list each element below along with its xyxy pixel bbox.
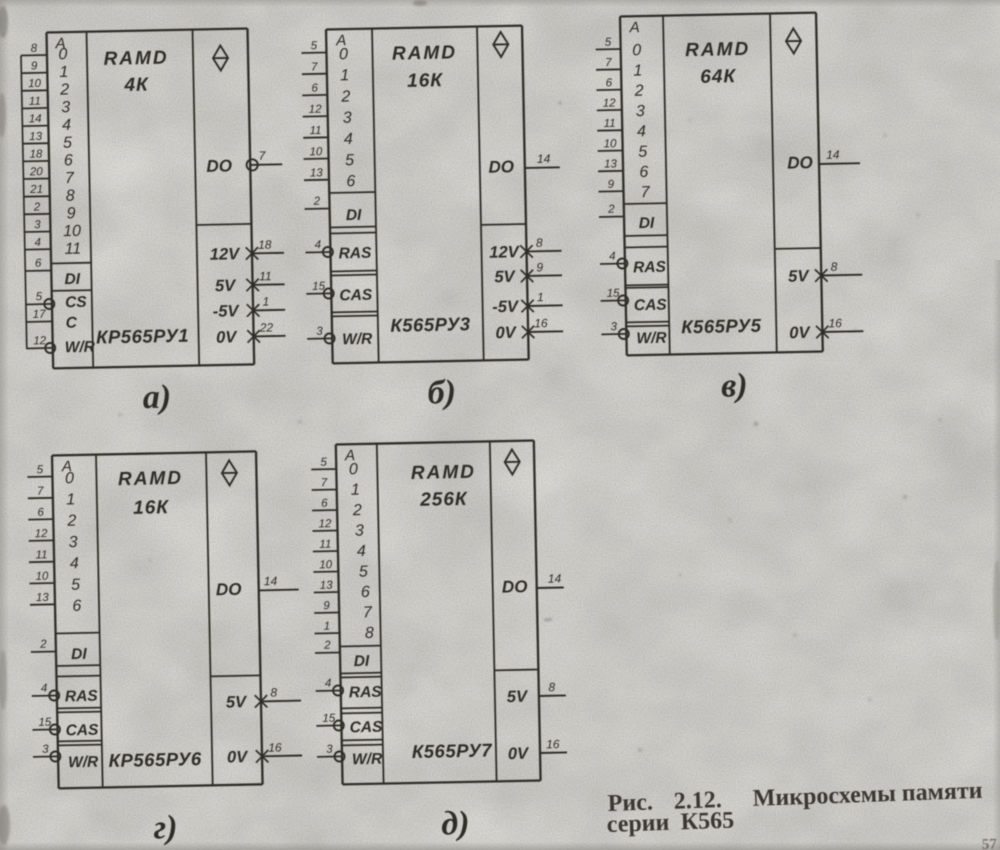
svg-text:9: 9 [323, 600, 330, 612]
svg-text:DI: DI [354, 653, 371, 670]
svg-text:256К: 256К [419, 489, 468, 511]
svg-text:DI: DI [71, 646, 88, 663]
svg-text:К565РУ5: К565РУ5 [681, 315, 762, 338]
svg-text:12V: 12V [210, 245, 242, 264]
svg-text:11: 11 [64, 241, 81, 258]
svg-text:6: 6 [639, 164, 648, 181]
svg-text:4: 4 [315, 239, 322, 251]
svg-text:8: 8 [31, 43, 38, 55]
svg-text:2: 2 [607, 204, 615, 216]
svg-text:серии: серии [606, 810, 670, 838]
svg-text:18: 18 [258, 238, 272, 252]
svg-text:4: 4 [34, 237, 41, 249]
svg-text:18: 18 [29, 148, 43, 160]
svg-text:а): а) [142, 379, 171, 417]
svg-text:11: 11 [604, 118, 616, 130]
svg-text:CAS: CAS [634, 297, 668, 315]
svg-text:8: 8 [270, 686, 277, 700]
svg-text:4: 4 [70, 555, 79, 572]
svg-text:3: 3 [61, 99, 70, 116]
svg-text:12V: 12V [489, 243, 521, 262]
svg-text:16К: 16К [133, 497, 170, 519]
svg-text:3: 3 [343, 110, 352, 127]
svg-text:1: 1 [537, 290, 544, 304]
svg-text:11: 11 [319, 539, 331, 551]
svg-text:16: 16 [534, 316, 548, 330]
svg-text:5: 5 [359, 563, 368, 580]
svg-text:3: 3 [316, 326, 323, 338]
svg-text:16К: 16К [407, 70, 444, 92]
svg-text:RAS: RAS [349, 684, 383, 702]
svg-text:1: 1 [324, 621, 331, 633]
svg-text:W/R: W/R [342, 331, 373, 349]
svg-text:4: 4 [637, 123, 646, 140]
svg-text:2: 2 [633, 83, 643, 100]
svg-text:8: 8 [536, 236, 543, 250]
svg-text:2: 2 [59, 81, 69, 98]
svg-text:13: 13 [36, 592, 50, 604]
svg-text:6: 6 [606, 77, 613, 89]
svg-text:DO: DO [488, 157, 514, 177]
svg-text:2: 2 [313, 196, 321, 208]
svg-text:3: 3 [326, 744, 333, 756]
svg-text:К565: К565 [680, 808, 734, 836]
svg-text:CAS: CAS [339, 287, 373, 305]
svg-text:W/R: W/R [65, 339, 96, 357]
svg-text:6: 6 [311, 83, 318, 95]
svg-text:RAMD: RAMD [118, 468, 183, 490]
svg-text:12: 12 [318, 518, 332, 530]
svg-text:16: 16 [828, 316, 842, 330]
svg-text:К565РУ3: К565РУ3 [390, 313, 471, 336]
svg-text:16: 16 [268, 740, 282, 754]
svg-text:A: A [629, 19, 640, 36]
svg-text:7: 7 [37, 485, 44, 497]
svg-text:0V: 0V [216, 328, 239, 346]
svg-text:КР565РУ6: КР565РУ6 [108, 748, 202, 771]
svg-text:0V: 0V [508, 745, 531, 763]
svg-text:5V: 5V [507, 688, 530, 706]
svg-text:DO: DO [502, 577, 528, 597]
svg-text:б): б) [427, 374, 456, 412]
svg-text:RAS: RAS [338, 245, 372, 263]
svg-text:памяти: памяти [901, 778, 983, 807]
svg-text:RAMD: RAMD [411, 462, 476, 484]
svg-text:г): г) [153, 809, 178, 846]
svg-text:5: 5 [638, 144, 647, 161]
svg-text:5: 5 [71, 577, 80, 594]
svg-text:5: 5 [37, 464, 44, 476]
svg-text:RAMD: RAMD [392, 42, 457, 64]
svg-text:3: 3 [42, 744, 49, 756]
svg-text:7: 7 [321, 477, 328, 489]
svg-text:13: 13 [310, 167, 324, 179]
svg-text:3: 3 [636, 103, 645, 120]
svg-text:DO: DO [216, 580, 242, 600]
svg-text:7: 7 [640, 184, 650, 201]
svg-text:5: 5 [320, 457, 327, 469]
svg-text:17: 17 [33, 309, 47, 321]
svg-text:0: 0 [632, 42, 641, 59]
svg-text:6: 6 [321, 498, 328, 510]
svg-text:13: 13 [604, 158, 618, 170]
svg-text:6: 6 [37, 507, 44, 519]
svg-text:5: 5 [311, 40, 318, 52]
svg-text:20: 20 [29, 166, 44, 178]
svg-text:4: 4 [325, 678, 332, 690]
svg-text:10: 10 [309, 146, 323, 158]
svg-text:5V: 5V [226, 693, 249, 711]
svg-text:К565РУ7: К565РУ7 [412, 739, 494, 762]
svg-text:6: 6 [64, 152, 73, 169]
svg-text:14: 14 [826, 148, 840, 162]
svg-text:W/R: W/R [352, 751, 383, 769]
svg-text:CAS: CAS [349, 719, 383, 737]
svg-text:RAMD: RAMD [685, 39, 750, 61]
svg-text:2: 2 [352, 502, 362, 519]
svg-text:10: 10 [28, 78, 42, 90]
svg-text:-5V: -5V [213, 302, 241, 321]
svg-text:3: 3 [610, 321, 617, 333]
svg-text:5: 5 [36, 291, 43, 303]
svg-text:3: 3 [34, 219, 41, 231]
svg-text:21: 21 [29, 184, 43, 196]
svg-text:RAS: RAS [633, 259, 667, 277]
svg-text:5: 5 [605, 37, 612, 49]
svg-text:9: 9 [66, 205, 75, 222]
svg-text:16: 16 [546, 737, 560, 751]
svg-text:7: 7 [363, 604, 373, 621]
svg-text:1: 1 [59, 64, 68, 81]
svg-text:12: 12 [309, 104, 323, 116]
svg-text:9: 9 [31, 60, 38, 72]
svg-text:7: 7 [65, 170, 75, 187]
svg-text:3: 3 [68, 534, 77, 551]
svg-text:4: 4 [62, 117, 71, 134]
svg-text:DI: DI [639, 215, 656, 232]
svg-text:14: 14 [548, 571, 562, 585]
svg-text:Микросхемы: Микросхемы [752, 781, 896, 812]
svg-text:7: 7 [311, 61, 318, 73]
svg-text:8: 8 [548, 680, 555, 694]
svg-text:2: 2 [39, 639, 47, 651]
svg-text:9: 9 [608, 179, 615, 191]
svg-text:в): в) [721, 367, 748, 405]
svg-text:0: 0 [65, 470, 74, 487]
svg-text:10: 10 [319, 559, 333, 571]
svg-text:1: 1 [351, 482, 360, 499]
svg-text:8: 8 [66, 188, 75, 205]
svg-text:КР565РУ1: КР565РУ1 [96, 325, 189, 348]
svg-text:57: 57 [982, 836, 998, 850]
svg-text:22: 22 [259, 320, 274, 334]
svg-text:0V: 0V [789, 324, 812, 342]
svg-text:12: 12 [603, 97, 617, 109]
svg-text:DI: DI [64, 271, 81, 288]
svg-text:1: 1 [262, 295, 269, 309]
svg-text:11: 11 [309, 125, 321, 137]
svg-text:5V: 5V [494, 268, 517, 286]
svg-text:RAMD: RAMD [103, 48, 168, 70]
svg-text:0: 0 [349, 461, 358, 478]
svg-text:-5V: -5V [492, 298, 520, 317]
svg-text:9: 9 [536, 260, 543, 274]
svg-text:7: 7 [605, 57, 612, 69]
svg-text:4: 4 [41, 683, 48, 695]
svg-text:2: 2 [66, 513, 76, 530]
svg-text:10: 10 [35, 571, 49, 583]
svg-text:0: 0 [339, 46, 348, 63]
svg-text:6: 6 [72, 598, 81, 615]
svg-text:3: 3 [355, 522, 364, 539]
svg-text:6: 6 [35, 258, 42, 270]
svg-text:8: 8 [365, 625, 374, 642]
svg-text:1: 1 [633, 62, 642, 79]
svg-text:CS: CS [65, 294, 88, 311]
svg-text:DI: DI [346, 207, 363, 224]
svg-text:C: C [66, 314, 78, 331]
svg-text:10: 10 [63, 223, 81, 240]
svg-text:5: 5 [63, 135, 72, 152]
svg-text:1: 1 [340, 67, 349, 84]
svg-text:10: 10 [604, 138, 618, 150]
svg-text:12: 12 [35, 528, 49, 540]
svg-text:5V: 5V [215, 277, 238, 295]
svg-text:11: 11 [35, 549, 47, 561]
svg-text:DO: DO [787, 153, 813, 173]
svg-text:13: 13 [29, 131, 43, 143]
svg-text:4: 4 [357, 543, 366, 560]
svg-text:0V: 0V [495, 324, 518, 342]
svg-text:W/R: W/R [636, 330, 667, 348]
svg-text:д): д) [441, 805, 470, 843]
svg-text:W/R: W/R [68, 754, 99, 772]
svg-text:1: 1 [66, 491, 75, 508]
svg-text:5: 5 [345, 152, 354, 169]
svg-text:6: 6 [361, 584, 370, 601]
svg-text:4К: 4К [123, 74, 149, 96]
svg-text:2: 2 [340, 88, 350, 105]
svg-text:14: 14 [264, 574, 278, 588]
svg-text:13: 13 [320, 580, 334, 592]
svg-text:2: 2 [323, 640, 331, 652]
svg-text:4: 4 [344, 131, 353, 148]
svg-text:14: 14 [537, 152, 551, 166]
svg-text:CAS: CAS [65, 722, 99, 740]
svg-text:5V: 5V [788, 267, 811, 285]
svg-text:2: 2 [33, 202, 41, 214]
svg-text:RAS: RAS [65, 688, 99, 706]
svg-text:0: 0 [58, 46, 67, 63]
svg-text:0V: 0V [227, 748, 250, 766]
svg-text:4: 4 [609, 251, 616, 263]
svg-text:8: 8 [831, 260, 838, 274]
svg-text:11: 11 [259, 269, 272, 283]
svg-text:11: 11 [29, 96, 41, 108]
svg-text:64К: 64К [700, 66, 737, 88]
svg-text:6: 6 [346, 173, 355, 190]
svg-text:DO: DO [206, 156, 232, 176]
svg-text:14: 14 [29, 113, 42, 125]
